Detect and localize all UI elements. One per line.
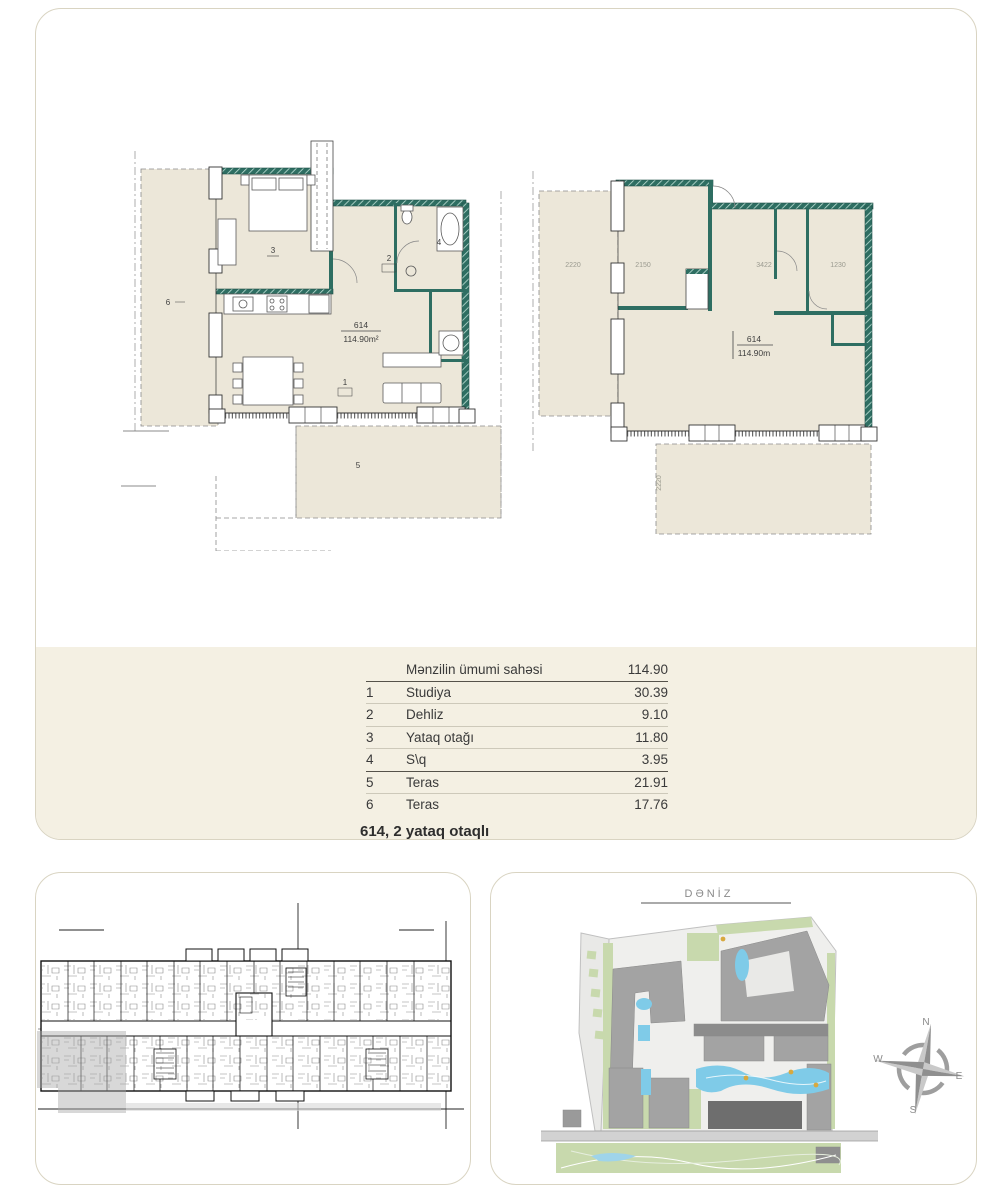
room-5-label: 5 xyxy=(356,461,361,470)
highlighted-building xyxy=(708,1101,802,1129)
row-value: 11.80 xyxy=(604,730,668,745)
compass-n-label: N xyxy=(922,1017,929,1028)
highlighted-apartment-area xyxy=(37,1031,126,1113)
terrace-left-floor xyxy=(141,169,218,426)
site-plan-panel: DƏNİZ xyxy=(490,872,977,1185)
shaft xyxy=(686,269,708,309)
row-num: 6 xyxy=(366,797,406,812)
row-name: Teras xyxy=(406,775,604,790)
floor-plan-dimensioned: 2220 2150 3422 1230 2220 614 114.90m xyxy=(521,151,921,551)
dim-label: 2220 xyxy=(565,262,581,269)
area-table: Mənzilin ümumi sahəsi 114.90 1 Studiya 3… xyxy=(366,659,668,840)
dim-label: 2150 xyxy=(635,262,651,269)
compass-s-label: S xyxy=(910,1105,917,1116)
row-value: 17.76 xyxy=(604,797,668,812)
row-name: S\q xyxy=(406,752,604,767)
unit-plan-panel: 3 2 4 1 6 5 614 114.90m² xyxy=(35,8,977,840)
header-label: Mənzilin ümumi sahəsi xyxy=(406,662,604,677)
dim-label: 3422 xyxy=(756,262,772,269)
room-3-label: 3 xyxy=(271,246,276,255)
header-value: 114.90 xyxy=(604,662,668,677)
site-plan-drawing: DƏNİZ xyxy=(491,873,977,1185)
building-mid-b xyxy=(774,1036,828,1061)
terrace-bottom-floor xyxy=(296,426,501,518)
dim-label-vertical: 2220 xyxy=(656,475,663,491)
row-value: 9.10 xyxy=(604,707,668,722)
room-1-label: 1 xyxy=(343,378,348,387)
compass-e-label: E xyxy=(956,1071,963,1082)
row-value: 21.91 xyxy=(604,775,668,790)
compass-rose: N E S W xyxy=(868,1015,973,1121)
row-num: 1 xyxy=(366,685,406,700)
table-row: 2 Dehliz 9.10 xyxy=(366,704,668,727)
brochure-page: { "page": { "title": "614, 2 yataq otaql… xyxy=(0,0,1006,1200)
row-num: 4 xyxy=(366,752,406,767)
row-name: Dehliz xyxy=(406,707,604,722)
floor-plate-drawing xyxy=(36,873,471,1185)
row-num: 2 xyxy=(366,707,406,722)
terrace-bottom-floor xyxy=(656,444,871,534)
row-value: 30.39 xyxy=(604,685,668,700)
dim-label: 1230 xyxy=(830,262,846,269)
outbuilding xyxy=(563,1110,581,1127)
building-mid-band xyxy=(694,1024,828,1036)
row-num: 3 xyxy=(366,730,406,745)
ground-strip xyxy=(126,1103,441,1111)
sea-label: DƏNİZ xyxy=(685,887,734,900)
dimension-marks xyxy=(121,431,169,486)
road xyxy=(541,1131,878,1141)
building-left-low-a xyxy=(609,1068,643,1128)
row-name: Teras xyxy=(406,797,604,812)
room-2-label: 2 xyxy=(387,254,392,263)
table-row: 3 Yataq otağı 11.80 xyxy=(366,727,668,750)
unit-number: 614 xyxy=(747,334,761,344)
floor-plate-panel xyxy=(35,872,471,1185)
shaft xyxy=(311,141,333,251)
table-row: 6 Teras 17.76 xyxy=(366,794,668,816)
building-mid-a xyxy=(704,1036,764,1061)
unit-area: 114.90m xyxy=(738,348,770,358)
unit-area: 114.90m² xyxy=(343,334,378,344)
row-name: Yataq otağı xyxy=(406,730,604,745)
row-name: Studiya xyxy=(406,685,604,700)
table-row: 1 Studiya 30.39 xyxy=(366,682,668,705)
table-header-row: Mənzilin ümumi sahəsi 114.90 xyxy=(366,659,668,682)
room-4-label: 4 xyxy=(437,238,442,247)
table-row: 5 Teras 21.91 xyxy=(366,772,668,795)
cad-detail-texture xyxy=(42,962,450,1020)
table-row: 4 S\q 3.95 xyxy=(366,749,668,772)
compass-w-label: W xyxy=(873,1054,883,1065)
room-6-label: 6 xyxy=(166,298,171,307)
unit-title: 614, 2 yataq otaqlı xyxy=(360,823,668,840)
floor-plan-furnished: 3 2 4 1 6 5 614 114.90m² xyxy=(121,131,541,551)
row-num: 5 xyxy=(366,775,406,790)
unit-number: 614 xyxy=(354,320,368,330)
terrace-left-floor xyxy=(539,191,618,416)
row-value: 3.95 xyxy=(604,752,668,767)
building-left-low-b xyxy=(649,1078,689,1128)
